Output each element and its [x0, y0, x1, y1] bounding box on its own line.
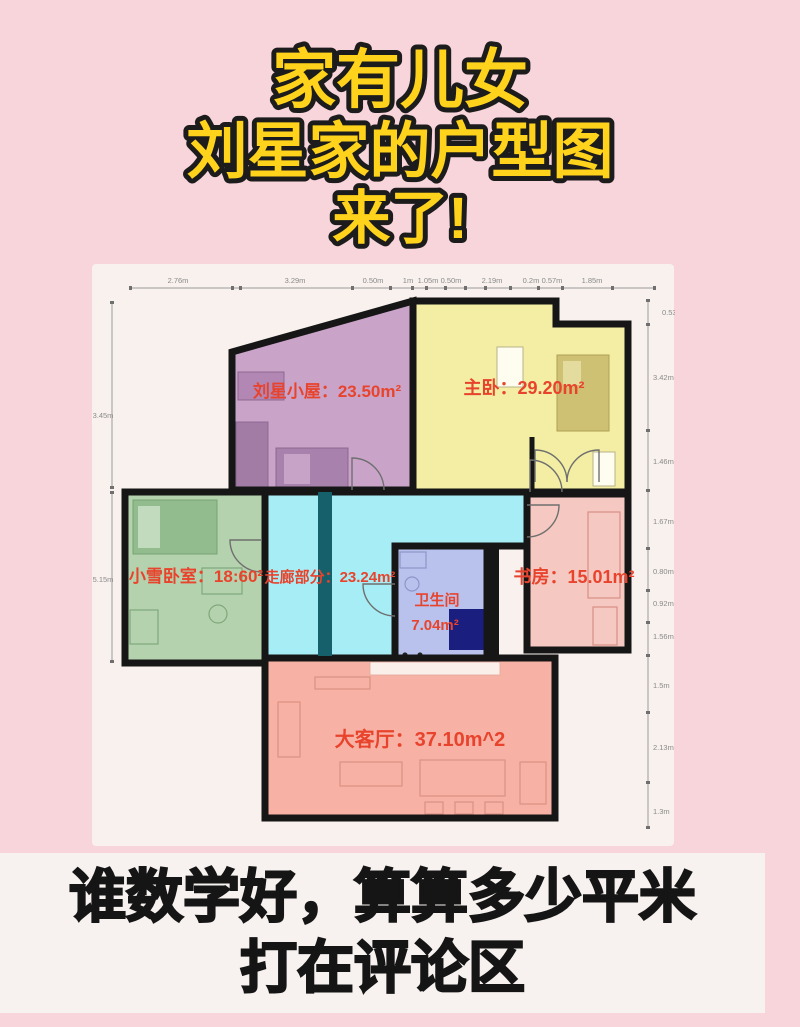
label-bathroom-area: 7.04m² — [411, 617, 459, 634]
label-master: 主卧：29.20m² — [463, 377, 584, 398]
poster-title: 家有儿女 刘星家的户型图 来了! — [0, 10, 800, 260]
dim-top-3: 0.50m — [363, 276, 384, 285]
dim-top-4: 1m — [403, 276, 413, 285]
footer-caption: 谁数学好，算算多少平米 打在评论区 — [0, 853, 765, 1013]
label-study: 书房：15.01m² — [513, 566, 634, 587]
title-line-2: 刘星家的户型图 — [186, 117, 613, 185]
title-line-1: 家有儿女 — [272, 44, 528, 116]
fixture-icon — [593, 452, 615, 486]
dim-right-7: 1.56m — [653, 632, 674, 641]
kitchen-counter-icon — [370, 662, 500, 675]
label-corridor: 走廊部分：23.24m² — [265, 568, 396, 586]
dim-right-2: 3.42m — [653, 373, 674, 382]
dim-top-1: 2.76m — [168, 276, 189, 285]
dim-right-9: 2.13m — [653, 743, 674, 752]
dim-top-6: 0.50m — [441, 276, 462, 285]
label-liuxing: 刘星小屋：23.50m² — [253, 381, 402, 401]
floorplan: 刘星小屋：23.50m² 主卧：29.20m² 小雪卧室：18:60² 走廊部分… — [90, 262, 675, 847]
dim-right-10: 1.3m — [653, 807, 670, 816]
dim-right-1: 0.53m — [662, 308, 675, 317]
dim-right-8: 1.5m — [653, 681, 670, 690]
dim-top-5: 1.05m — [418, 276, 439, 285]
dim-right-6: 0.92m — [653, 599, 674, 608]
dim-right-5: 0.80m — [653, 567, 674, 576]
footer-line-1: 谁数学好，算算多少平米 — [69, 862, 696, 933]
dim-right-4: 1.67m — [653, 517, 674, 526]
dim-right-3: 1.46m — [653, 457, 674, 466]
title-line-3: 来了! — [332, 186, 467, 251]
label-xiaoxue: 小雪卧室：18:60² — [129, 566, 263, 586]
label-living: 大客厅：37.10m^2 — [335, 727, 506, 751]
dim-left-1: 3.45m — [93, 411, 114, 420]
dim-top-2: 3.29m — [285, 276, 306, 285]
dim-left-2: 5.15m — [93, 575, 114, 584]
dim-top-10: 1.85m — [582, 276, 603, 285]
label-bathroom-name: 卫生间 — [414, 591, 459, 609]
dim-top-7: 2.19m — [482, 276, 503, 285]
wardrobe-icon — [236, 422, 268, 490]
pillow-icon — [284, 454, 310, 484]
wall-block — [487, 546, 499, 658]
poster-page: { "title": { "line1": "家有儿女", "line2": "… — [0, 0, 800, 1027]
dim-top-8: 0.2m — [523, 276, 540, 285]
footer-line-2: 打在评论区 — [240, 933, 525, 1004]
dim-top-9: 0.57m — [542, 276, 563, 285]
pillow-icon — [138, 506, 160, 548]
